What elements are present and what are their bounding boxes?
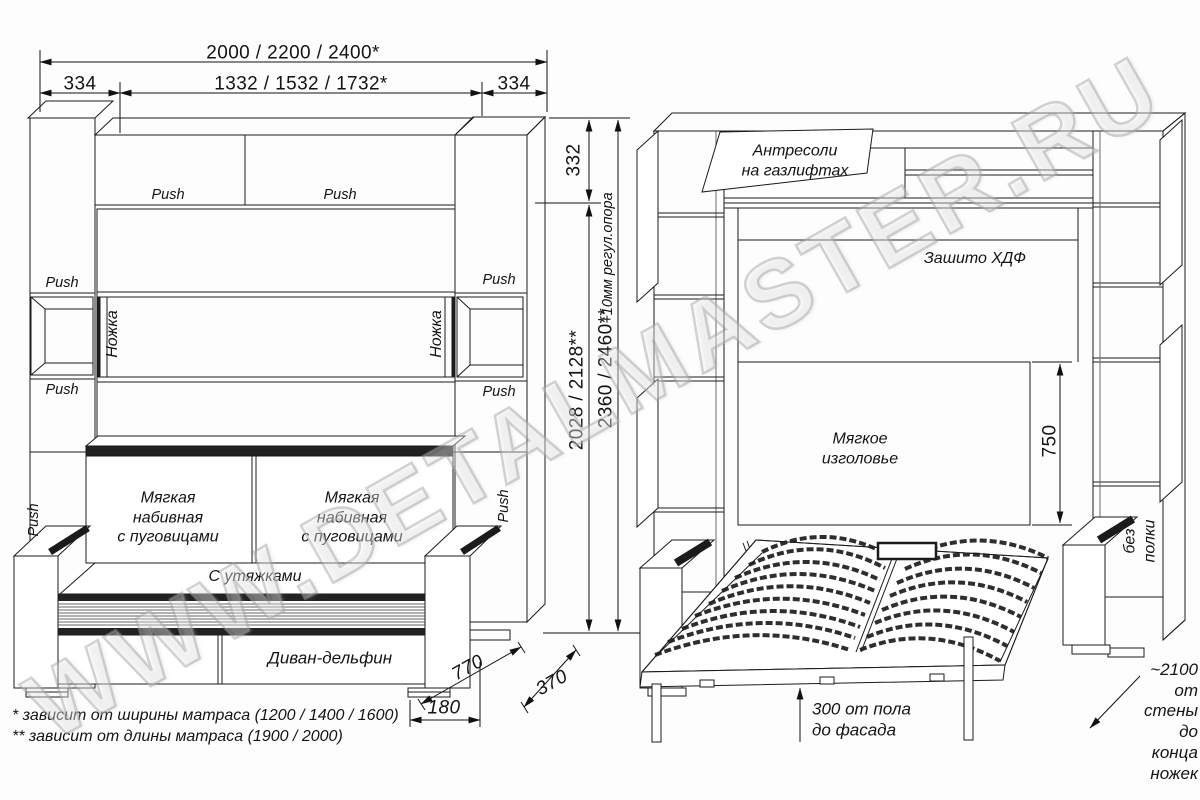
straps-label: С утяжками (208, 567, 301, 587)
dim-top-height: 332 (562, 144, 585, 177)
push-label-right-bottom-rotated: Push (496, 489, 514, 522)
dim-plinth-depth: 180 (428, 696, 461, 719)
bed-leg-label-left: Ножка (103, 310, 123, 358)
push-label-left-lower: Push (45, 382, 78, 400)
cushion-label-right: Мягкая набивная с пуговицами (301, 489, 402, 548)
back-panel-label: Зашито ХДФ (924, 249, 1026, 269)
cushion-label-left: Мягкая набивная с пуговицами (117, 489, 218, 548)
dim-total-width: 2000 / 2200 / 2400* (206, 41, 379, 64)
push-label-left-upper: Push (45, 275, 78, 293)
push-label-antresol-left: Push (151, 187, 184, 205)
dim-inner-height: 2028 / 2128** (565, 330, 588, 450)
dim-side-width-right: 334 (498, 72, 531, 95)
bed-leg-label-right: Ножка (427, 310, 447, 358)
dim-side-width-left: 334 (64, 72, 97, 95)
dim-total-height: 2360 / 2460** (594, 308, 617, 428)
push-label-antresol-right: Push (323, 187, 356, 205)
dim-wall-to-legs: ~2100 от стены до конца ножек (1144, 660, 1198, 784)
push-label-right-upper: Push (482, 272, 515, 290)
flap-label: Антресоли на газлифтах (742, 141, 849, 180)
dim-headboard-height: 750 (1038, 425, 1061, 458)
footnote-length: ** зависит от длины матраса (1900 / 2000… (12, 727, 343, 747)
dim-floor-to-facade: 300 от пола до фасада (812, 699, 911, 740)
no-shelf-label: без полки (1120, 511, 1159, 571)
support-note: +10мм регул.опора (600, 192, 618, 323)
push-label-right-lower: Push (482, 384, 515, 402)
technical-drawing-page: 2000 / 2200 / 2400* 334 1332 / 1532 / 17… (0, 0, 1200, 800)
footnote-width: * зависит от ширины матраса (1200 / 1400… (12, 706, 399, 726)
push-label-left-bottom-rotated: Push (26, 503, 44, 536)
dim-inner-width: 1332 / 1532 / 1732* (214, 72, 387, 95)
headboard-label: Мягкое изголовье (822, 429, 898, 468)
sofa-type-label: Диван-дельфин (268, 649, 392, 670)
